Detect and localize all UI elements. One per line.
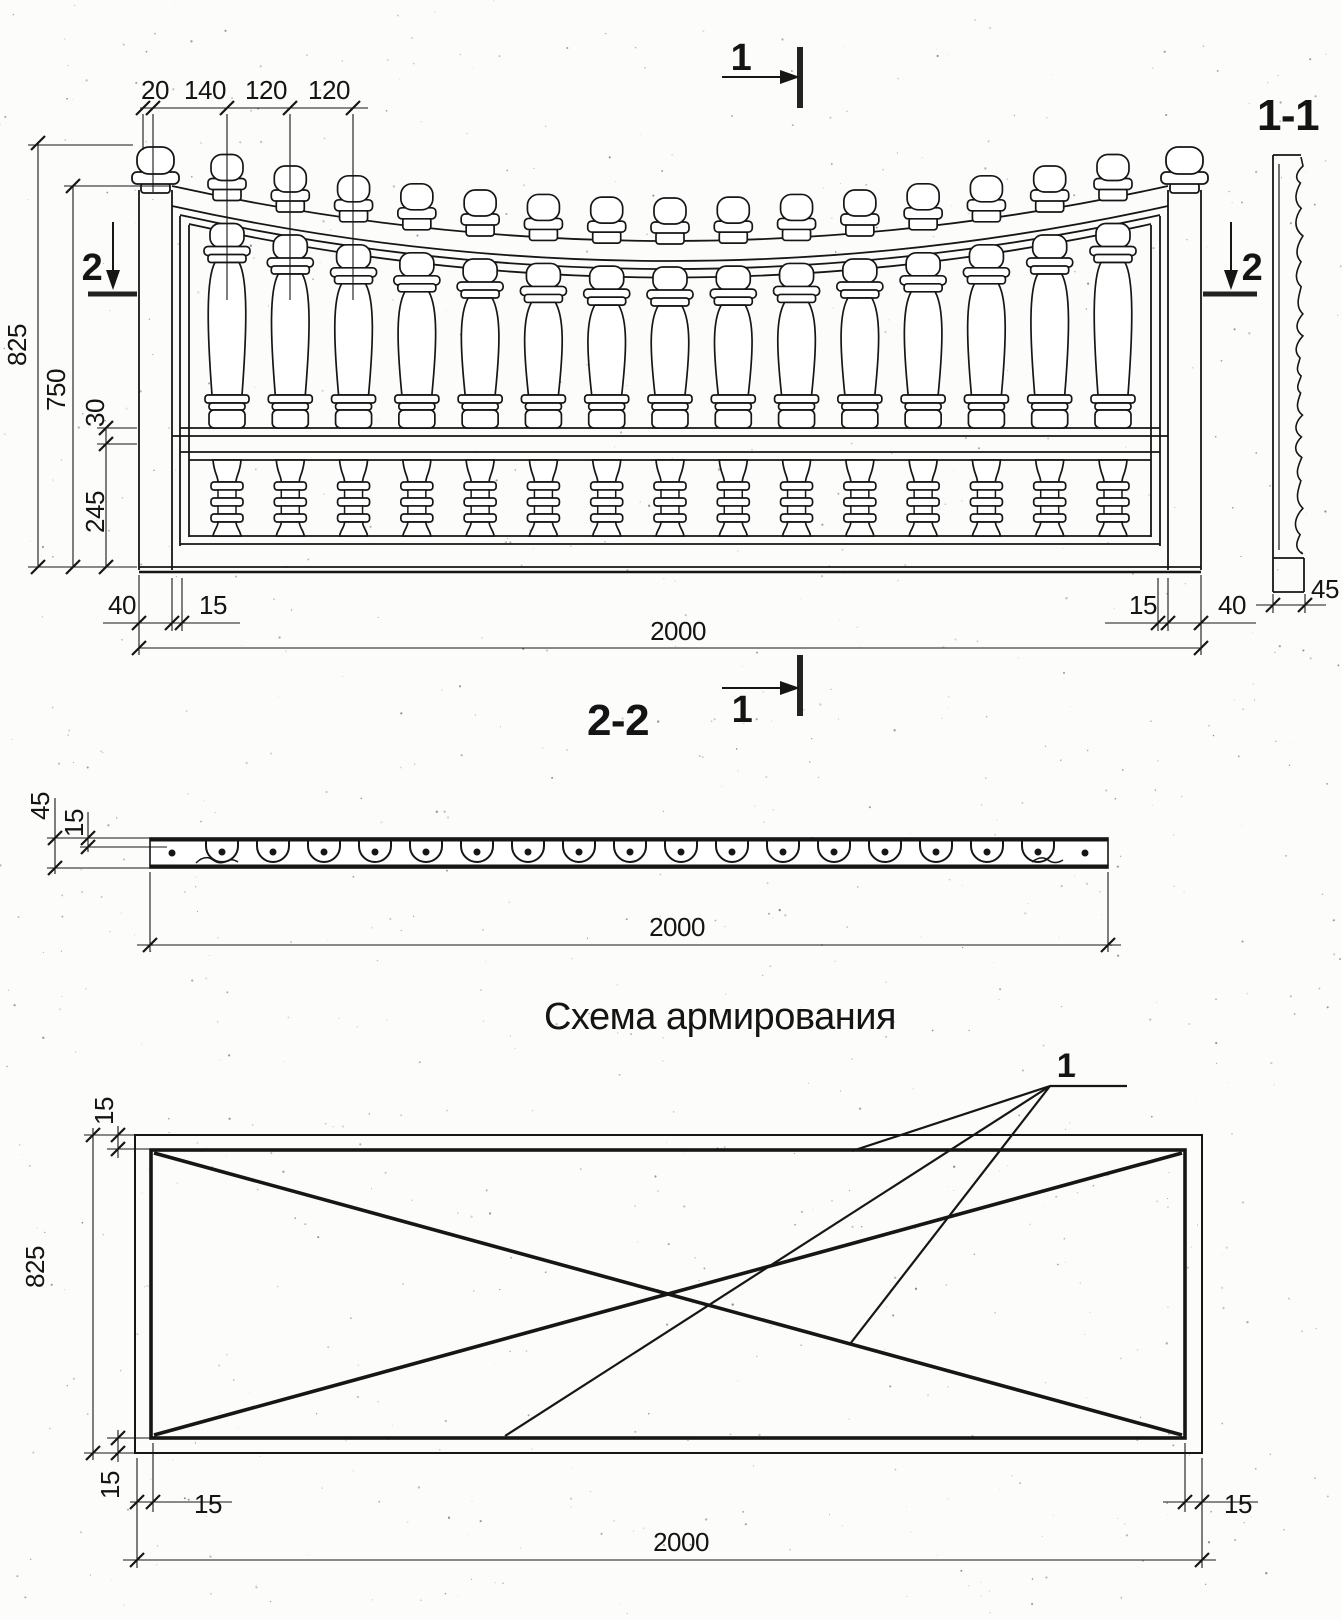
rail-finial xyxy=(841,190,879,236)
view-label-1-1: 1-1 xyxy=(1257,91,1319,140)
tall-baluster xyxy=(1027,235,1073,428)
dim-label-15-cover-bottom: 15 xyxy=(95,1471,125,1499)
end-rebar-dot xyxy=(1082,850,1088,856)
tall-baluster xyxy=(394,253,440,428)
tall-baluster xyxy=(963,245,1009,428)
dim-label-245: 245 xyxy=(80,491,110,533)
dim-label-15-right: 15 xyxy=(1129,590,1157,620)
rail-finial xyxy=(398,184,436,230)
section-mark-2-left: 2 xyxy=(82,247,103,289)
dim-label-750: 750 xyxy=(41,369,71,411)
section-mark-1-bottom: 1 xyxy=(732,689,753,731)
dim-label-15-cover-left: 15 xyxy=(194,1489,222,1519)
rail-finial xyxy=(461,190,499,236)
rail-finial xyxy=(714,197,752,243)
rail-finial xyxy=(651,198,689,244)
dim-label-2000-scheme: 2000 xyxy=(653,1527,709,1557)
dim-label-45-profile: 45 xyxy=(1311,574,1339,604)
dim-label-120a: 120 xyxy=(245,75,287,105)
dim-label-30: 30 xyxy=(80,399,110,427)
tall-baluster xyxy=(774,263,820,428)
dim-label-20: 20 xyxy=(141,75,169,105)
left-post-cap-dome xyxy=(137,147,174,174)
section-2-2-view xyxy=(150,838,1108,868)
rail-finial xyxy=(1094,154,1132,200)
tall-baluster xyxy=(647,267,693,428)
tall-baluster xyxy=(520,263,566,428)
balustrade-technical-drawing: 20 140 120 120 825 750 30 245 40 15 15 4… xyxy=(0,0,1342,1620)
dim-label-140: 140 xyxy=(184,75,226,105)
dim-label-15-cover-right: 15 xyxy=(1224,1489,1252,1519)
dim-label-45-strip: 45 xyxy=(25,792,55,820)
right-post-cap-dome xyxy=(1166,147,1203,174)
rail-finial xyxy=(588,197,626,243)
dim-label-40-right: 40 xyxy=(1218,590,1246,620)
end-rebar-dot xyxy=(169,850,175,856)
rail-finial xyxy=(524,194,562,240)
view-label-2-2: 2-2 xyxy=(587,696,649,745)
dim-label-40-left: 40 xyxy=(108,590,136,620)
tall-baluster xyxy=(900,253,946,428)
rail-finial xyxy=(335,176,373,222)
dim-label-825: 825 xyxy=(2,324,32,366)
dim-label-2000-elevation: 2000 xyxy=(650,616,706,646)
section-mark-1-top: 1 xyxy=(731,37,752,79)
balusters-group xyxy=(204,154,1136,536)
tall-baluster xyxy=(837,259,883,428)
scanned-drawing-page: 20 140 120 120 825 750 30 245 40 15 15 4… xyxy=(0,0,1342,1620)
rail-finial xyxy=(778,194,816,240)
tall-baluster xyxy=(584,266,630,428)
dim-label-15-strip: 15 xyxy=(59,809,89,837)
tall-baluster xyxy=(710,266,756,428)
tall-baluster xyxy=(457,259,503,428)
section-mark-2-right: 2 xyxy=(1242,247,1263,289)
dim-label-825-scheme: 825 xyxy=(20,1246,50,1288)
tall-baluster xyxy=(331,245,377,428)
scheme-title: Схема армирования xyxy=(544,996,896,1038)
dim-label-120b: 120 xyxy=(308,75,350,105)
rebar-callout-label: 1 xyxy=(1057,1047,1075,1085)
rail-finial xyxy=(967,176,1005,222)
rail-finial xyxy=(1031,166,1069,212)
dim-label-2000-strip: 2000 xyxy=(649,912,705,942)
dim-label-15-left: 15 xyxy=(199,590,227,620)
dim-label-15-cover-top: 15 xyxy=(89,1097,119,1125)
tall-baluster xyxy=(1090,223,1136,428)
rail-finial xyxy=(904,184,942,230)
